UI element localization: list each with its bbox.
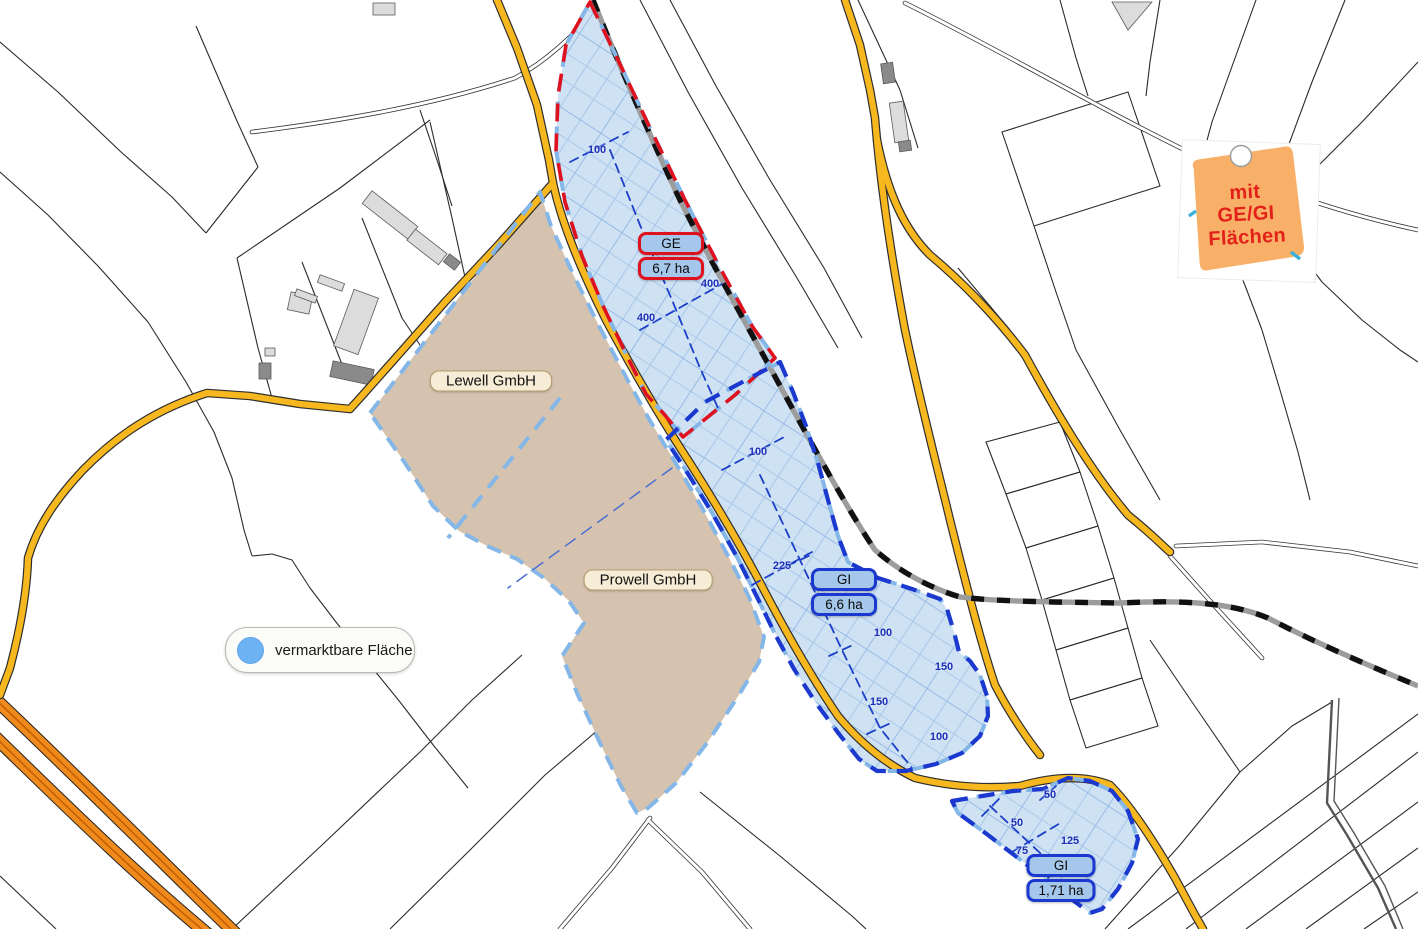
gi-main-code-badge[interactable]: GI [811, 568, 877, 591]
gi-main-size-badge[interactable]: 6,6 ha [811, 593, 877, 616]
dimension-label: 400 [701, 278, 719, 290]
dimension-label: 400 [637, 312, 655, 324]
note-line: Flächen [1208, 224, 1287, 250]
dimension-label: 50 [1011, 817, 1023, 829]
company-label-prowell[interactable]: Prowell GmbH [584, 570, 713, 591]
note-hole [1231, 146, 1252, 167]
dimension-label: 75 [1016, 845, 1028, 857]
legend: vermarktbare Fläche [225, 627, 415, 673]
dimension-label: 50 [1044, 789, 1056, 801]
map-canvas [0, 0, 1418, 929]
zoning-map: GE 6,7 ha GI 6,6 ha GI 1,71 ha Lewell Gm… [0, 0, 1418, 929]
legend-item-label: vermarktbare Fläche [275, 642, 413, 659]
sticky-note-text[interactable]: mit GE/GI Flächen [1205, 179, 1286, 250]
ge-code-badge[interactable]: GE [638, 232, 704, 255]
dimension-label: 225 [773, 560, 791, 572]
gi-south-area-label[interactable]: GI 1,71 ha [1026, 854, 1095, 902]
dimension-label: 100 [749, 446, 767, 458]
gi-south-code-badge[interactable]: GI [1026, 854, 1095, 877]
gi-main-area-label[interactable]: GI 6,6 ha [811, 568, 877, 616]
dimension-label: 100 [588, 144, 606, 156]
dimension-label: 150 [870, 696, 888, 708]
legend-swatch-circle [237, 637, 264, 664]
dimension-label: 100 [930, 731, 948, 743]
ge-area-label[interactable]: GE 6,7 ha [638, 232, 704, 280]
gi-south-size-badge[interactable]: 1,71 ha [1026, 879, 1095, 902]
ge-size-badge[interactable]: 6,7 ha [638, 257, 704, 280]
dimension-label: 150 [935, 661, 953, 673]
company-label-lewell[interactable]: Lewell GmbH [430, 371, 552, 392]
dimension-label: 125 [1061, 835, 1079, 847]
dimension-label: 100 [874, 627, 892, 639]
